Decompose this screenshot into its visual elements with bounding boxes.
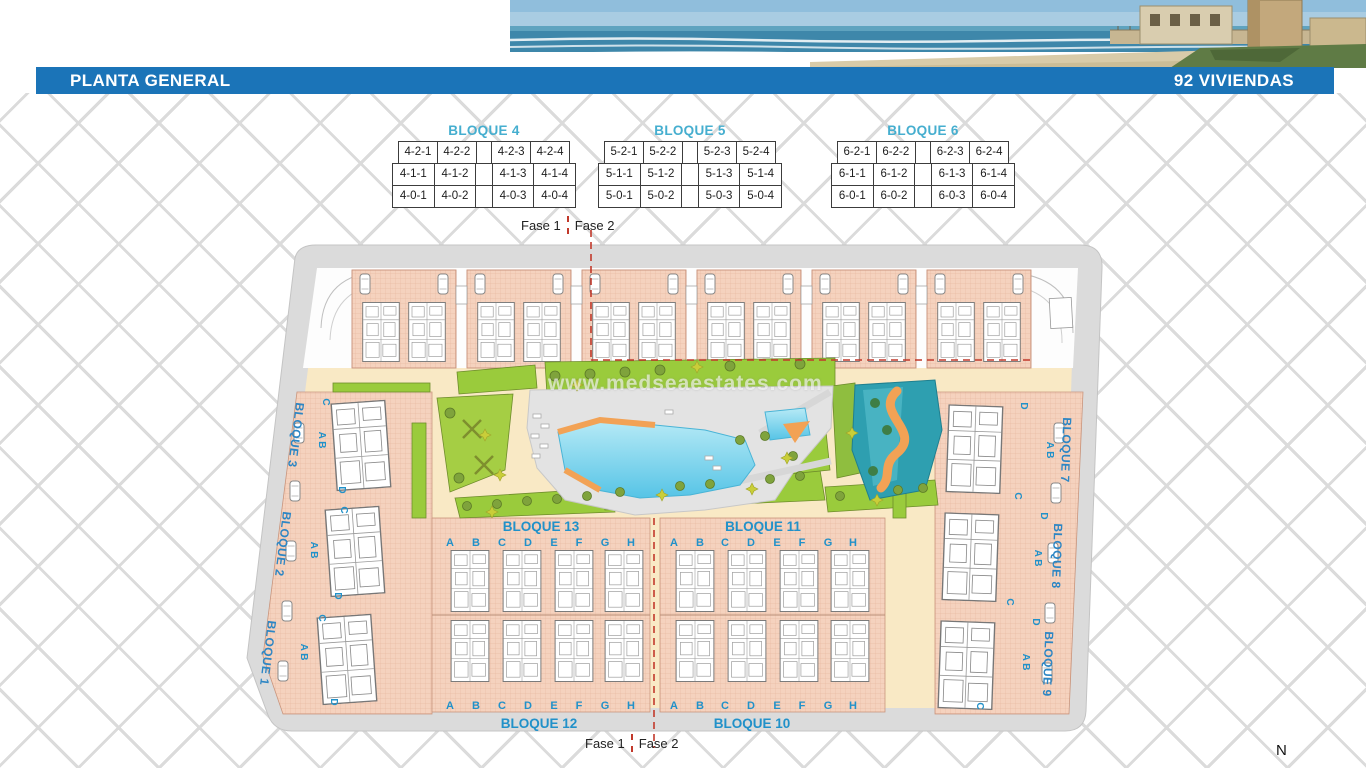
title-bar: PLANTA GENERAL 92 VIVIENDAS: [36, 67, 1334, 94]
fase-1-label-bottom: Fase 1: [585, 736, 625, 751]
svg-text:C: C: [1004, 598, 1015, 605]
unit-cell: 4-2-1: [398, 141, 438, 164]
svg-text:B: B: [472, 537, 480, 549]
unit-cell: 4-2-2: [437, 141, 477, 164]
unit-cell: 4-0-1: [392, 185, 435, 208]
unit-cell: 6-0-3: [931, 185, 974, 208]
unit-cell: 4-1-1: [392, 163, 435, 186]
unit-cell: 5-0-2: [640, 185, 683, 208]
unit-cell: 4-2-4: [530, 141, 570, 164]
svg-text:C: C: [721, 537, 729, 549]
unit-cell: 5-1-3: [698, 163, 741, 186]
svg-text:B: B: [696, 537, 704, 549]
site-plan: BLOQUE 13 BLOQUE 11 BLOQUE 12 BLOQUE 10 …: [235, 228, 1115, 756]
unit-cell: 5-2-1: [604, 141, 644, 164]
svg-text:D: D: [1018, 402, 1029, 409]
svg-text:A B: A B: [298, 644, 309, 661]
watermark: www.medseaestates.com: [548, 372, 848, 396]
svg-text:G: G: [824, 537, 833, 549]
unit-cell: 6-1-3: [931, 163, 974, 186]
utility-box: [1049, 297, 1073, 328]
spacer-cell: [914, 163, 931, 186]
svg-text:E: E: [550, 537, 557, 549]
svg-text:F: F: [576, 537, 583, 549]
svg-text:G: G: [601, 700, 610, 712]
unit-cell: 6-2-1: [837, 141, 877, 164]
unit-cell: 5-2-2: [643, 141, 683, 164]
svg-text:D: D: [1030, 618, 1041, 625]
svg-text:A: A: [446, 700, 454, 712]
unit-cell: 5-1-2: [640, 163, 683, 186]
unit-cell: 6-0-1: [831, 185, 874, 208]
fase-divider-line-bottom: [631, 734, 633, 752]
unit-cell: 6-2-2: [876, 141, 916, 164]
svg-text:C: C: [721, 700, 729, 712]
spacer-cell: [682, 141, 698, 164]
unit-cell: 6-1-1: [831, 163, 874, 186]
fase-1-label: Fase 1: [521, 218, 561, 233]
spacer-cell: [475, 163, 492, 186]
svg-text:B: B: [472, 700, 480, 712]
svg-text:A B: A B: [1044, 442, 1055, 459]
svg-text:H: H: [627, 537, 635, 549]
page: BLOQUE 13 BLOQUE 11 BLOQUE 12 BLOQUE 10 …: [0, 0, 1366, 768]
spacer-cell: [915, 141, 931, 164]
svg-text:A B: A B: [1020, 654, 1031, 671]
svg-text:C: C: [320, 398, 331, 405]
unit-cell: 5-0-3: [698, 185, 741, 208]
fase-label-top: Fase 1 Fase 2: [521, 216, 615, 234]
svg-text:F: F: [799, 700, 806, 712]
svg-text:H: H: [627, 700, 635, 712]
unit-cell: 6-1-4: [972, 163, 1015, 186]
unit-cell: 4-0-3: [492, 185, 535, 208]
svg-text:F: F: [799, 537, 806, 549]
spacer-cell: [475, 185, 492, 208]
beach-photo: [510, 0, 1366, 68]
bloque-4-title: BLOQUE 4: [392, 123, 576, 138]
svg-text:D: D: [328, 698, 339, 705]
svg-text:A: A: [670, 537, 678, 549]
unit-cell: 6-2-4: [969, 141, 1009, 164]
unit-cell: 5-1-4: [739, 163, 782, 186]
svg-text:E: E: [773, 537, 780, 549]
svg-text:A: A: [446, 537, 454, 549]
bloque-4-table: BLOQUE 4 4-2-1 4-2-2 4-2-3 4-2-4 4-1-1 4…: [392, 123, 576, 208]
label-bloque-10: BLOQUE 10: [714, 716, 791, 731]
svg-text:E: E: [773, 700, 780, 712]
bloque-5-title: BLOQUE 5: [598, 123, 782, 138]
spacer-cell: [681, 163, 698, 186]
svg-text:F: F: [576, 700, 583, 712]
unit-cell: 5-2-3: [697, 141, 737, 164]
unit-cell: 6-0-4: [972, 185, 1015, 208]
label-bloque-11: BLOQUE 11: [725, 519, 801, 534]
svg-text:C: C: [498, 700, 506, 712]
units-count-label: 92 VIVIENDAS: [1174, 71, 1294, 91]
unit-cell: 4-0-4: [533, 185, 576, 208]
north-indicator: N: [1276, 742, 1287, 759]
svg-text:D: D: [332, 592, 343, 599]
unit-cell: 4-2-3: [491, 141, 531, 164]
bloque-5-table: BLOQUE 5 5-2-1 5-2-2 5-2-3 5-2-4 5-1-1 5…: [598, 123, 782, 208]
unit-cell: 5-0-1: [598, 185, 641, 208]
unit-cell: 6-2-3: [930, 141, 970, 164]
svg-text:D: D: [1038, 512, 1049, 519]
svg-text:D: D: [747, 700, 755, 712]
svg-text:D: D: [524, 537, 532, 549]
label-bloque-12: BLOQUE 12: [501, 716, 578, 731]
label-bloque-13: BLOQUE 13: [503, 519, 580, 534]
svg-text:A B: A B: [316, 432, 327, 449]
svg-text:H: H: [849, 537, 857, 549]
svg-text:D: D: [524, 700, 532, 712]
svg-text:C: C: [498, 537, 506, 549]
unit-cell: 5-2-4: [736, 141, 776, 164]
svg-text:H: H: [849, 700, 857, 712]
svg-text:D: D: [747, 537, 755, 549]
bloque-6-title: BLOQUE 6: [831, 123, 1015, 138]
unit-cell: 4-1-3: [492, 163, 535, 186]
svg-text:A B: A B: [1032, 550, 1043, 567]
unit-cell: 4-1-4: [533, 163, 576, 186]
svg-text:C: C: [1012, 492, 1023, 499]
fase-label-bottom: Fase 1 Fase 2: [585, 734, 679, 752]
page-title: PLANTA GENERAL: [70, 71, 230, 91]
fase-divider-line: [567, 216, 569, 234]
unit-cell: 6-1-2: [873, 163, 916, 186]
svg-text:A: A: [670, 700, 678, 712]
svg-text:C: C: [974, 702, 985, 709]
svg-text:D: D: [336, 486, 347, 493]
svg-text:B: B: [696, 700, 704, 712]
unit-cell: 6-0-2: [873, 185, 916, 208]
svg-text:E: E: [550, 700, 557, 712]
unit-cell: 5-1-1: [598, 163, 641, 186]
svg-text:G: G: [824, 700, 833, 712]
unit-cell: 4-1-2: [434, 163, 477, 186]
unit-cell: 5-0-4: [739, 185, 782, 208]
fase-2-label-bottom: Fase 2: [639, 736, 679, 751]
unit-cell: 4-0-2: [434, 185, 477, 208]
fase-2-label: Fase 2: [575, 218, 615, 233]
spacer-cell: [476, 141, 492, 164]
svg-text:A B: A B: [308, 542, 319, 559]
svg-text:C: C: [338, 506, 349, 513]
svg-text:G: G: [601, 537, 610, 549]
svg-text:C: C: [316, 614, 327, 621]
bloque-6-table: BLOQUE 6 6-2-1 6-2-2 6-2-3 6-2-4 6-1-1 6…: [831, 123, 1015, 208]
spacer-cell: [914, 185, 931, 208]
spacer-cell: [681, 185, 698, 208]
